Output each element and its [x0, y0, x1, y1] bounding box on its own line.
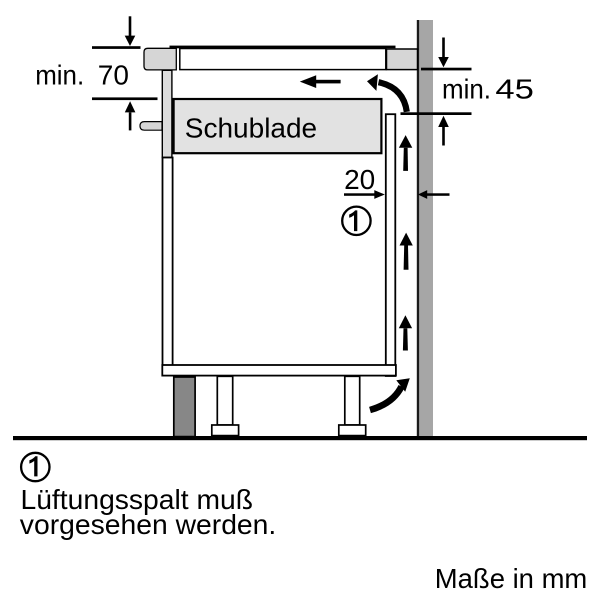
svg-text:min.: min. [442, 74, 491, 105]
svg-text:min.: min. [35, 60, 84, 91]
svg-text:45: 45 [495, 74, 534, 105]
svg-text:20: 20 [344, 164, 375, 195]
svg-text:Maße in mm: Maße in mm [435, 563, 588, 594]
svg-text:vorgesehen werden.: vorgesehen werden. [20, 509, 277, 540]
svg-text:70: 70 [98, 60, 129, 91]
svg-text:Schublade: Schublade [185, 113, 317, 144]
